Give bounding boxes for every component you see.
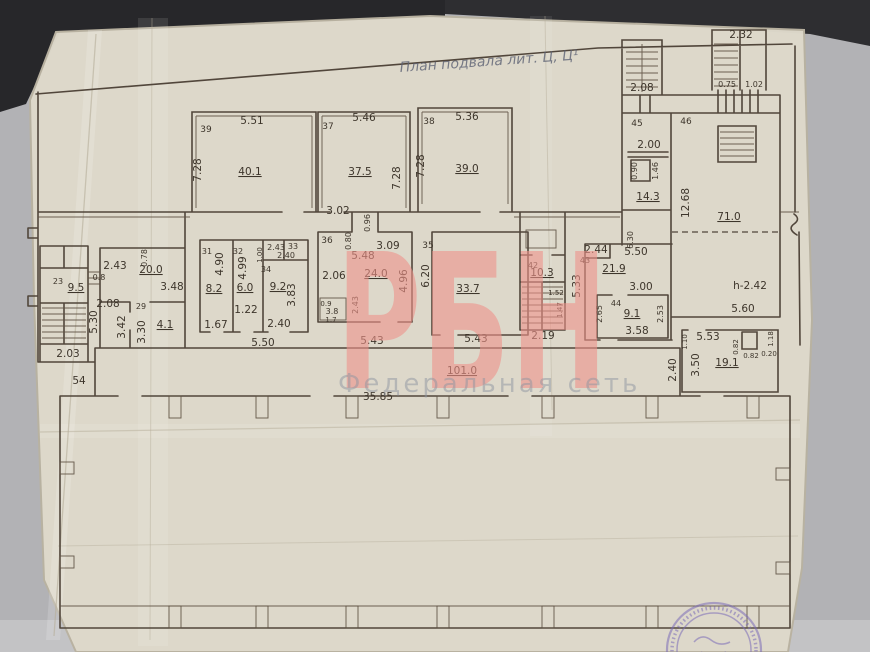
dimension-label: 8.2: [206, 283, 223, 295]
dimension-label: 2.53: [656, 305, 665, 323]
dimension-label: 4.1: [157, 319, 174, 331]
dimension-label: 5.50: [251, 337, 274, 349]
dimension-label: 40.1: [238, 166, 261, 178]
dimension-label: 54: [72, 375, 86, 387]
dimension-label: 1.67: [204, 319, 227, 331]
dimension-label: 37: [322, 122, 333, 132]
dimension-label: 2.40: [667, 358, 679, 381]
dimension-label: 3.50: [690, 353, 702, 376]
dimension-label: 45: [631, 119, 642, 129]
dimension-label: 19.1: [715, 357, 738, 369]
dimension-label: 2.08: [630, 82, 653, 94]
dimension-label: 0.82: [743, 352, 759, 360]
dimension-label: 2.40: [277, 251, 295, 260]
dimension-label: 1.10: [681, 334, 689, 350]
dimension-label: 1.46: [651, 162, 660, 180]
dimension-label: 39: [200, 125, 212, 135]
dimension-label: 44: [611, 299, 621, 308]
dimension-label: 5.36: [455, 111, 479, 123]
dimension-label: 23: [53, 277, 63, 286]
dimension-label: 32: [233, 247, 243, 256]
dimension-label: 5.46: [352, 112, 376, 124]
dimension-label: 3.58: [625, 325, 648, 337]
watermark-tagline: Федеральная сеть: [338, 369, 640, 399]
dimension-label: 33: [288, 242, 298, 251]
dimension-label: 5.60: [731, 303, 754, 315]
dimension-label: 1.00: [256, 247, 264, 263]
dimension-label: 0.90: [630, 162, 639, 180]
dimension-label: 4.90: [214, 252, 226, 275]
dimension-label: 9.5: [68, 282, 85, 294]
dimension-label: 14.3: [636, 191, 659, 203]
dimension-label: 0.8: [93, 273, 106, 282]
dimension-label: 7.28: [192, 158, 204, 181]
dimension-label: 34: [261, 265, 271, 274]
dimension-label: 9.1: [624, 308, 641, 320]
dimension-label: 38: [423, 117, 435, 127]
dimension-label: h-2.42: [733, 280, 767, 292]
dimension-label: 1.22: [234, 304, 257, 316]
dimension-label: 9.2: [270, 281, 287, 293]
dimension-label: 46: [680, 117, 692, 127]
dimension-label: 5.51: [240, 115, 263, 127]
floorplan-photo: 395.517.2840.1375.467.2837.5385.367.2839…: [0, 0, 870, 652]
dimension-label: 36: [321, 236, 333, 246]
dimension-label: 3.83: [286, 283, 298, 306]
dimension-label: 2.08: [96, 298, 119, 310]
dimension-label: 1.18: [767, 331, 775, 347]
dimension-label: 5.50: [624, 246, 647, 258]
dimension-label: 39.0: [455, 163, 478, 175]
dimension-label: 2.00: [637, 139, 660, 151]
dimension-label: 1.02: [745, 80, 763, 89]
dimension-label: 6.0: [237, 282, 254, 294]
watermark-brand: РБН: [336, 214, 608, 433]
dimension-label: 3.30: [136, 320, 148, 343]
plan-canvas: 395.517.2840.1375.467.2837.5385.367.2839…: [0, 0, 870, 652]
dimension-label: 31: [202, 247, 212, 256]
dimension-label: 3.42: [116, 315, 128, 338]
dimension-label: 12.68: [680, 188, 692, 218]
dimension-label: 2.32: [729, 29, 752, 41]
dimension-label: 71.0: [717, 211, 740, 223]
dimension-label: 2.03: [56, 348, 79, 360]
dimension-label: 37.5: [348, 166, 371, 178]
dimension-label: 4.99: [237, 256, 249, 279]
dimension-label: 7.28: [415, 154, 427, 177]
dimension-label: 5.53: [696, 331, 719, 343]
dimension-label: 7.28: [391, 166, 403, 189]
dimension-label: 3.00: [629, 281, 652, 293]
dimension-label: 1.7: [325, 316, 336, 324]
dimension-label: 3.48: [160, 281, 183, 293]
dimension-label: 2.43: [103, 260, 126, 272]
dimension-label: 0.75: [718, 80, 736, 89]
dimension-label: 5.30: [88, 310, 100, 333]
dimension-label: 0.82: [732, 339, 740, 355]
dimension-label: 0.20: [761, 350, 777, 358]
dimension-label: 2.40: [267, 318, 290, 330]
dimension-label: 29: [136, 302, 146, 311]
dimension-label: 0.78: [140, 249, 149, 267]
